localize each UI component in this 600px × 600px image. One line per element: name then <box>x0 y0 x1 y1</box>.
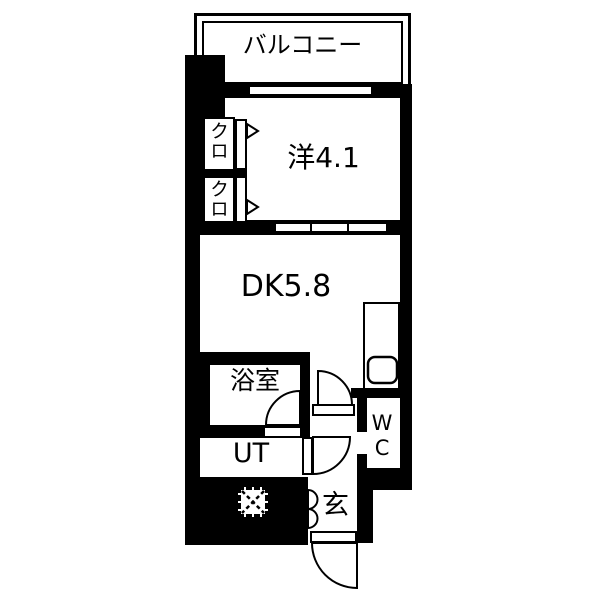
room-label-closet-upper: クロ <box>207 121 227 161</box>
room-label-balcony: バルコニー <box>202 33 403 58</box>
room-label-entrance: 玄 <box>322 492 349 520</box>
shoe-cabinet-bifold-door <box>308 490 318 528</box>
closet-upper-door <box>235 119 247 170</box>
wall-right <box>400 84 412 490</box>
bathroom-door-threshold <box>263 426 302 438</box>
room-label-dining-kitchen: DK5.8 <box>200 271 372 303</box>
closet-upper-triangle-icon <box>247 124 258 138</box>
washing-machine-area <box>238 487 268 517</box>
hall-entrance-door-swing <box>313 437 350 474</box>
room-label-western-room: 洋4.1 <box>247 143 400 172</box>
room-label-toilet: WC <box>371 411 393 461</box>
room-label-bathroom: 浴室 <box>210 368 300 394</box>
room-label-utility: UT <box>200 440 302 468</box>
wall-lower-right-column <box>357 490 373 543</box>
closet-lower-triangle-icon <box>247 200 258 214</box>
entrance-door-swing <box>312 543 357 588</box>
entrance-door-threshold <box>310 531 357 543</box>
sliding-door <box>274 222 388 233</box>
room-label-closet-lower: クロ <box>207 179 227 219</box>
wall-wc-bottom <box>357 468 412 490</box>
wall-wc-left-upper <box>357 398 367 432</box>
wall-left-upper <box>185 117 203 235</box>
wall-wc-left-lower <box>357 454 367 468</box>
closet-lower-door <box>235 176 247 223</box>
kitchen-counter <box>363 302 400 390</box>
dk-hall-door-swing <box>318 371 352 405</box>
dk-hall-door-threshold <box>312 404 355 416</box>
window-balcony <box>248 85 373 96</box>
hall-door-panel <box>302 437 313 475</box>
floorplan-canvas: バルコニー <box>0 0 600 600</box>
